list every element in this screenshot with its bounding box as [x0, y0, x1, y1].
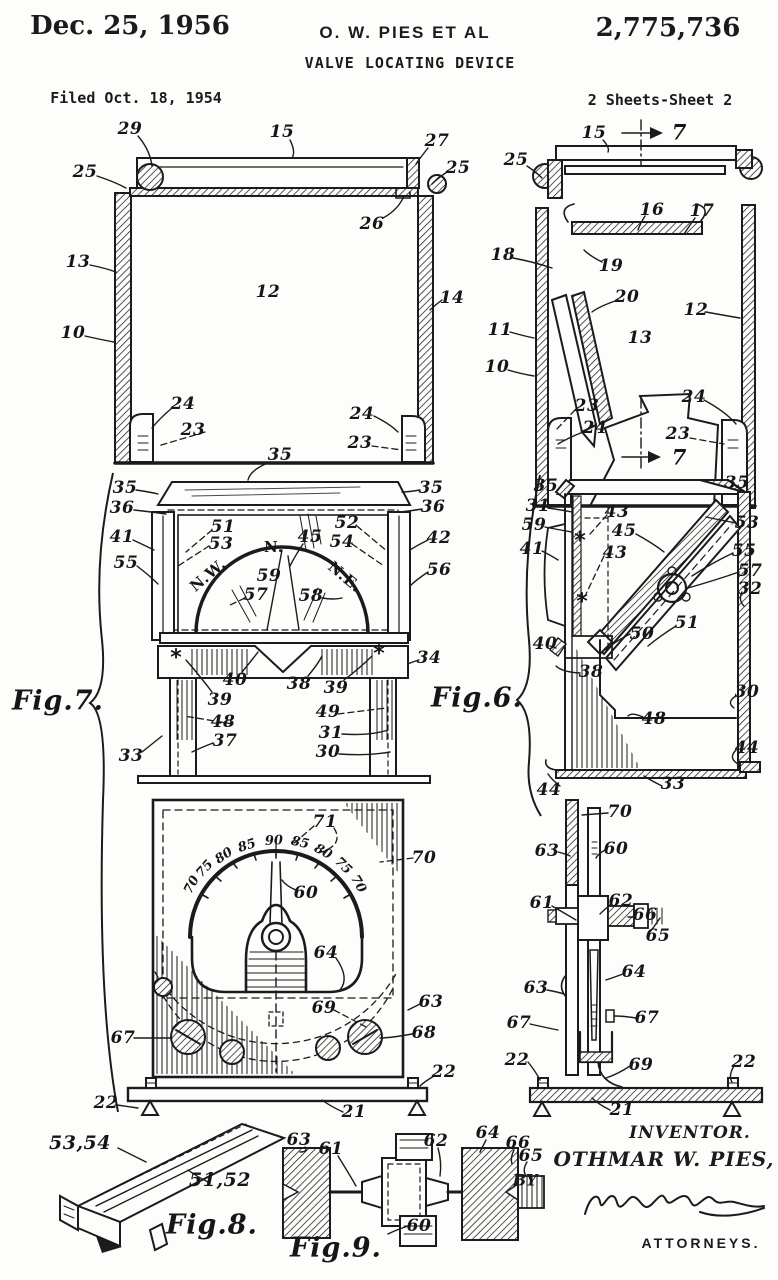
fig8-drawing — [60, 1124, 284, 1253]
dial-edge-view-drawing — [530, 800, 762, 1116]
patent-number: 2,775,736 — [596, 13, 741, 43]
fig6-drawing — [545, 480, 761, 778]
patent-date: Dec. 25, 1956 — [30, 11, 230, 41]
patent-sheet: Dec. 25, 1956 O. W. PIES ET AL 2,775,736… — [0, 0, 778, 1280]
front-view-drawing — [115, 158, 446, 463]
inventor-label: INVENTOR. — [629, 1123, 751, 1143]
by-label: BY — [513, 1171, 538, 1190]
inventor-name: OTHMAR W. PIES, — [553, 1147, 774, 1171]
patent-drawing — [0, 0, 778, 1280]
fig9-drawing — [283, 1134, 544, 1246]
attorney-signature — [585, 1196, 764, 1216]
attorneys-label: ATTORNEYS. — [642, 1235, 761, 1251]
sheet-indicator: 2 Sheets-Sheet 2 — [588, 91, 733, 109]
fig7-dial-drawing — [128, 800, 427, 1115]
fig7-compass-drawing — [138, 482, 430, 783]
side-view-drawing — [533, 120, 762, 508]
filed-date: Filed Oct. 18, 1954 — [50, 89, 222, 107]
patent-title: VALVE LOCATING DEVICE — [305, 54, 516, 72]
inventor-line: O. W. PIES ET AL — [319, 23, 490, 43]
